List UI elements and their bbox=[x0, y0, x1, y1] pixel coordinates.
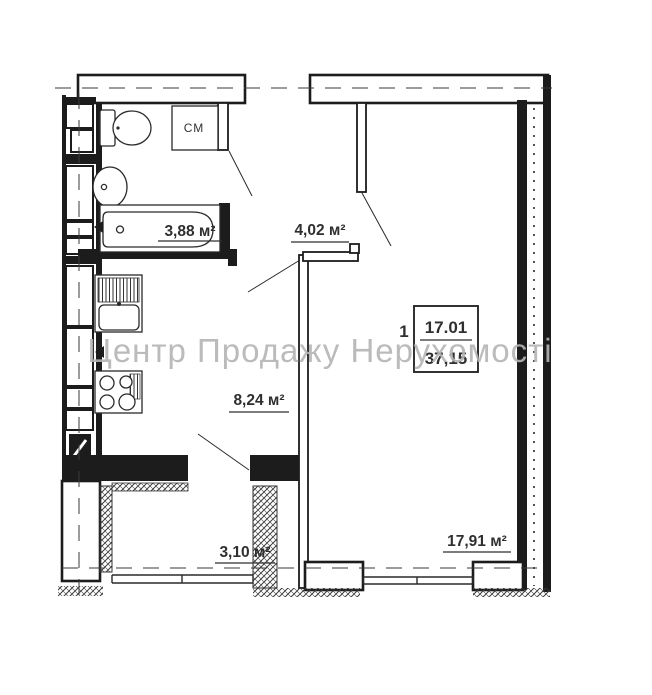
kitchen-sink bbox=[95, 275, 142, 332]
bathtub-drain bbox=[117, 226, 124, 233]
bathroom-door-jamb bbox=[228, 259, 237, 266]
label-living-room: 17,91 м² bbox=[447, 533, 507, 550]
washing-machine-label: СМ bbox=[184, 121, 205, 135]
floor-plan-svg: СМ 1 bbox=[0, 0, 652, 695]
stove bbox=[95, 371, 142, 413]
kitchen-door-jamb bbox=[350, 244, 359, 253]
wall-top-right-band bbox=[310, 75, 548, 103]
label-bathroom: 3,88 м² bbox=[164, 223, 215, 240]
label-hallway: 4,02 м² bbox=[294, 222, 345, 239]
balcony-wall-left bbox=[100, 486, 112, 572]
kitchen-bottom-wall-right bbox=[250, 455, 299, 481]
washing-machine: СМ bbox=[172, 106, 218, 150]
bathroom-sink bbox=[93, 167, 127, 207]
wall-left-lower bbox=[62, 481, 100, 581]
bathroom-partition-upper bbox=[218, 103, 228, 150]
kitchen-partition bbox=[299, 255, 308, 588]
watermark: Центр Продажу Нерухомості bbox=[87, 332, 552, 369]
kitchen-bottom-wall-left bbox=[62, 455, 188, 481]
balcony-wall-right bbox=[253, 486, 277, 588]
wall-top-left-band bbox=[78, 75, 245, 103]
label-kitchen: 8,24 м² bbox=[233, 392, 284, 409]
hatch-strip-bottom-middle bbox=[253, 588, 360, 597]
label-balcony: 3,10 м² bbox=[219, 544, 270, 561]
living-room-pier-right bbox=[473, 562, 523, 590]
toilet bbox=[100, 110, 151, 146]
hatch-strip-bottom-left bbox=[58, 586, 103, 596]
living-room-pier-left bbox=[305, 562, 363, 590]
balcony-top-strip bbox=[112, 483, 188, 491]
floor-plan-page: СМ 1 bbox=[0, 0, 652, 695]
hallway-partition bbox=[357, 103, 366, 192]
hatch-strip-bottom-right bbox=[473, 588, 550, 597]
